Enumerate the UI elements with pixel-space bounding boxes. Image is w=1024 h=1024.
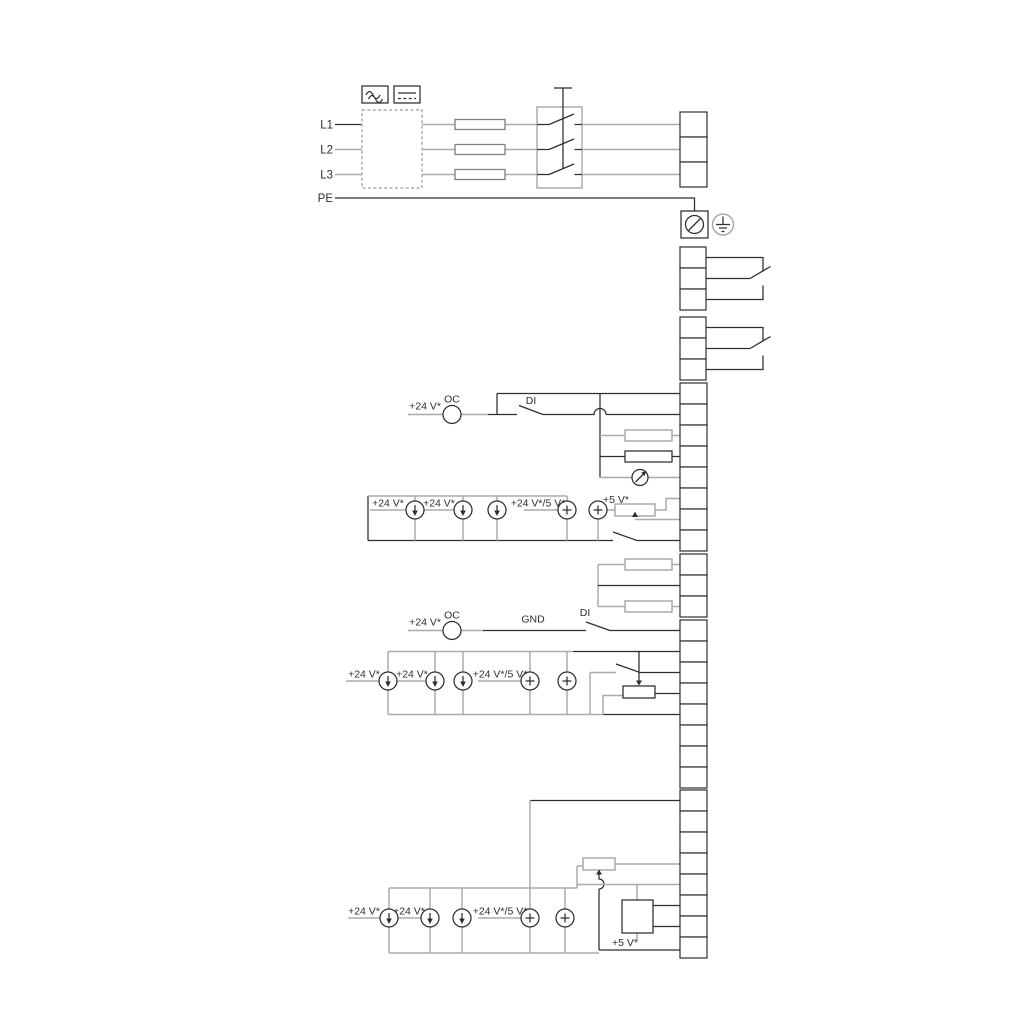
mains-dark-wires — [335, 125, 695, 212]
io3-gray-wires — [348, 801, 680, 954]
io-terminal-block-1-cell — [680, 488, 707, 509]
annotation-set1-5v: +5 V* — [603, 494, 629, 506]
io-terminal-block-1-cell — [680, 446, 707, 467]
ac-wave-icon — [366, 92, 383, 103]
fuse-l1 — [455, 120, 505, 130]
pe-ground-symbols — [681, 211, 734, 238]
annotation-set1-mixed: +24 V*/5 V* — [511, 498, 566, 510]
liqtec-sensor-2 — [625, 601, 672, 612]
screw-slot — [688, 218, 701, 231]
relay1-contact — [706, 258, 771, 300]
annotation-set2-mixed: +24 V*/5 V* — [473, 669, 528, 681]
mains-input-section: L1 L2 L3 PE — [318, 86, 734, 238]
annotation-di3: DI — [580, 607, 591, 619]
source-arrow-head — [385, 682, 391, 688]
pot-wiper-arrow-ai1 — [636, 681, 642, 686]
io1-gray-wires — [408, 415, 680, 478]
power-terminal-block-cell — [680, 162, 707, 187]
analog-meter-icon — [632, 470, 648, 486]
io-terminal-block-3-cell — [680, 853, 707, 874]
annotation-24v-oc1: +24 V* — [409, 617, 441, 629]
io-terminal-block-2-cell — [680, 683, 707, 704]
io1-dark-wires — [488, 394, 680, 478]
io-terminal-block-2-cell — [680, 662, 707, 683]
pt100-sensor-2 — [625, 451, 672, 462]
wiring-diagram: L1 L2 L3 PE — [0, 0, 1024, 1024]
liqtec-terminal-block-cell — [680, 554, 707, 575]
io3-dark-wires — [530, 801, 680, 951]
io-terminal-block-1-cell — [680, 425, 707, 446]
io-terminal-block-3-cell — [680, 832, 707, 853]
io2-row10-dark — [483, 622, 680, 631]
source-arrow-head — [460, 511, 466, 517]
fuse-l3 — [455, 170, 505, 180]
annotation-set2-24v-b: +24 V* — [396, 669, 428, 681]
liqtec-terminal-block-cell — [680, 575, 707, 596]
dc-symbol-box — [394, 86, 420, 103]
annotation-di4: DI — [526, 395, 537, 407]
relay2-terminal-block-cell — [680, 317, 706, 338]
main-disconnect-switch — [537, 88, 582, 188]
io-terminal-block-2-cell — [680, 767, 707, 788]
io-terminal-block-3-cell — [680, 895, 707, 916]
liqtec-circuit — [598, 559, 680, 612]
emc-filter-box — [362, 110, 422, 188]
io-terminal-block-3-cell — [680, 874, 707, 895]
set2-dark-wires — [573, 652, 680, 715]
annotation-set3-24v-a: +24 V* — [348, 906, 380, 918]
converter-symbols — [362, 86, 420, 103]
io-terminal-block-1-cell — [680, 383, 707, 404]
phase-label-l3: L3 — [320, 170, 333, 182]
power-terminal-block-cell — [680, 137, 707, 162]
annotation-set3-5v: +5 V* — [612, 937, 638, 949]
source-arrow-head — [432, 682, 438, 688]
io-terminal-block-2-cell — [680, 620, 707, 641]
meter-needle — [636, 474, 645, 483]
annotation-24v-oc2: +24 V* — [409, 401, 441, 413]
io-terminal-block-2-cell — [680, 641, 707, 662]
io-terminal-block-3-cell — [680, 790, 707, 811]
source-arrow-head — [494, 511, 500, 517]
io-terminal-block-2-cell — [680, 746, 707, 767]
liqtec-sensor-1 — [625, 559, 672, 570]
io-terminal-block-3-cell — [680, 811, 707, 832]
annotation-oc2: OC — [444, 394, 460, 406]
potentiometer-ai2 — [583, 858, 615, 870]
relay-contact-section — [706, 258, 771, 370]
source-arrow-head — [427, 919, 433, 925]
switch-poles — [537, 88, 582, 175]
relay1-terminal-block-cell — [680, 289, 706, 310]
phase-label-l1: L1 — [320, 120, 333, 132]
mains-fuses — [455, 120, 505, 180]
io2-circuit: +24 V* OC GND DI +24 V* +24 V* +24 V*/5 … — [346, 607, 680, 715]
annotation-set3-mixed: +24 V*/5 V* — [473, 906, 528, 918]
open-collector-circle-oc1 — [443, 622, 461, 640]
phase-label-l2: L2 — [320, 145, 333, 157]
wiring-diagram-page: L1 L2 L3 PE — [0, 0, 1024, 1024]
relay2-terminal-block-cell — [680, 338, 706, 359]
plus-icon — [561, 914, 570, 923]
annotation-set2-24v-a: +24 V* — [348, 669, 380, 681]
pt100-sensor-1 — [625, 430, 672, 441]
open-collector-circle-oc2 — [443, 406, 461, 424]
plus-icon — [563, 677, 572, 686]
liqtec-terminal-block-cell — [680, 596, 707, 617]
terminal-blocks — [379, 112, 707, 958]
io-terminal-block-1-cell — [680, 509, 707, 530]
io-terminal-block-3-cell — [680, 916, 707, 937]
pot-wiper-arrow-ai3 — [632, 512, 638, 518]
source-arrow-head — [459, 919, 465, 925]
annotation-set1-24v-b: +24 V* — [423, 498, 455, 510]
io-terminal-block-1-cell — [680, 404, 707, 425]
plus-icon — [594, 506, 603, 515]
relay1-terminal-block-cell — [680, 268, 706, 289]
gds-sensor-box — [622, 900, 653, 933]
annotation-gnd-oc1: GND — [521, 614, 545, 626]
io-terminal-block-1-cell — [680, 467, 707, 488]
earth-ground-icon — [716, 217, 730, 232]
fuse-l2 — [455, 145, 505, 155]
io-terminal-block-1-cell — [680, 530, 707, 551]
relay2-contact — [706, 328, 771, 370]
io-terminal-block-2-cell — [680, 725, 707, 746]
relay2-terminal-block-cell — [680, 359, 706, 380]
pe-label: PE — [318, 193, 334, 205]
source-arrow-head — [386, 919, 392, 925]
annotation-set1-24v-a: +24 V* — [372, 498, 404, 510]
annotation-oc1: OC — [444, 610, 460, 622]
io-terminal-block-3-cell — [680, 937, 707, 958]
relay1-terminal-block-cell — [680, 247, 706, 268]
switch-box — [537, 107, 582, 188]
power-terminal-block-cell — [680, 112, 707, 137]
io1-circuit: +24 V* OC DI — [408, 394, 680, 486]
mains-gray-wires — [335, 125, 680, 175]
potentiometer-ai1 — [623, 686, 655, 698]
source-arrow-head — [460, 682, 466, 688]
io-terminal-block-2-cell — [680, 704, 707, 725]
source-arrow-head — [412, 511, 418, 517]
io3-circuit: +24 V* +24 V* +24 V*/5 V* +5 V* — [348, 801, 680, 954]
